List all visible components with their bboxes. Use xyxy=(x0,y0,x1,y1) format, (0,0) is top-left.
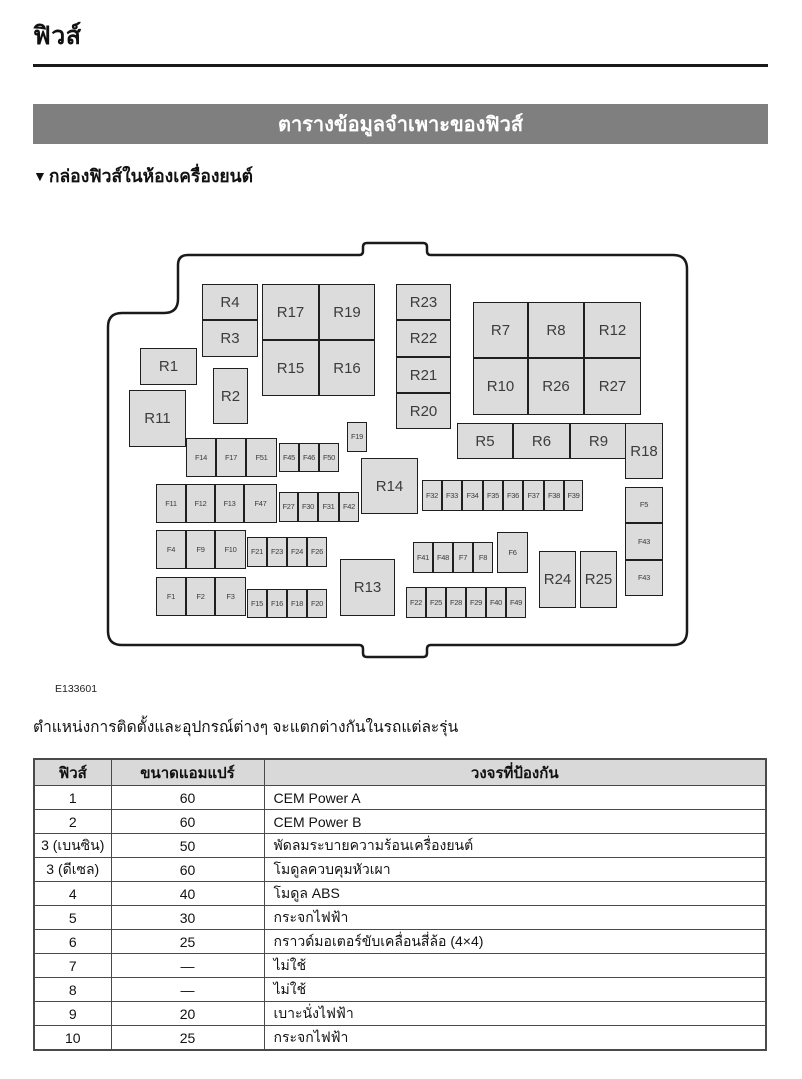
table-row: 160CEM Power A xyxy=(34,786,766,810)
fuse-F6: F6 xyxy=(497,532,528,573)
table-cell: 9 xyxy=(34,1002,111,1026)
fuse-F20: F20 xyxy=(307,589,327,618)
table-cell: 60 xyxy=(111,810,264,834)
table-cell: — xyxy=(111,954,264,978)
relay-R4: R4 xyxy=(202,284,258,320)
relay-R17: R17 xyxy=(262,284,319,340)
relay-R26: R26 xyxy=(528,358,584,415)
table-row: 920เบาะนั่งไฟฟ้า xyxy=(34,1002,766,1026)
table-cell: 3 (เบนซิน) xyxy=(34,834,111,858)
fuse-F19: F19 xyxy=(347,422,367,452)
relay-R14: R14 xyxy=(361,458,418,514)
fuse-F41: F41 xyxy=(413,542,433,573)
fuse-F32: F32 xyxy=(422,480,442,511)
table-cell: เบาะนั่งไฟฟ้า xyxy=(264,1002,766,1026)
fuse-F3: F3 xyxy=(215,577,246,616)
table-cell: CEM Power B xyxy=(264,810,766,834)
table-row: 625กราวด์มอเตอร์ขับเคลื่อนสี่ล้อ (4×4) xyxy=(34,930,766,954)
fuse-F46: F46 xyxy=(299,443,319,472)
triangle-marker-icon: ▼ xyxy=(33,168,47,184)
fuse-F13: F13 xyxy=(215,484,244,523)
table-header-cell: วงจรที่ป้องกัน xyxy=(264,759,766,786)
table-cell: — xyxy=(111,978,264,1002)
relay-R8: R8 xyxy=(528,302,584,358)
relay-R2: R2 xyxy=(213,368,248,424)
relay-R20: R20 xyxy=(396,393,451,429)
subsection-label: กล่องฟิวส์ในห้องเครื่องยนต์ xyxy=(49,162,253,190)
relay-R23: R23 xyxy=(396,284,451,320)
fuse-F45: F45 xyxy=(279,443,299,472)
section-banner: ตารางข้อมูลจำเพาะของฟิวส์ xyxy=(33,104,768,144)
fuse-F37: F37 xyxy=(523,480,544,511)
table-cell: 60 xyxy=(111,858,264,882)
table-cell: 60 xyxy=(111,786,264,810)
fuse-F47: F47 xyxy=(244,484,277,523)
fuse-F42: F42 xyxy=(339,492,359,522)
table-cell: 10 xyxy=(34,1026,111,1051)
manual-page: ฟิวส์ ตารางข้อมูลจำเพาะของฟิวส์ ▼ กล่องฟ… xyxy=(0,0,802,1079)
table-cell: 8 xyxy=(34,978,111,1002)
fuse-F31: F31 xyxy=(318,492,339,522)
relay-R12: R12 xyxy=(584,302,641,358)
fuse-F40: F40 xyxy=(486,587,506,618)
fuse-F51: F51 xyxy=(246,438,277,477)
table-row: 3 (ดีเซล)60โมดูลควบคุมหัวเผา xyxy=(34,858,766,882)
fuse-F25: F25 xyxy=(426,587,446,618)
fuse-F33: F33 xyxy=(442,480,462,511)
table-cell: ไม่ใช้ xyxy=(264,954,766,978)
fuse-F12: F12 xyxy=(186,484,215,523)
fuse-F11: F11 xyxy=(156,484,186,523)
relay-R18: R18 xyxy=(625,423,663,479)
relay-R10: R10 xyxy=(473,358,528,415)
title-divider xyxy=(33,64,768,67)
fuse-F24: F24 xyxy=(287,537,307,567)
fuse-F22: F22 xyxy=(406,587,426,618)
relay-R22: R22 xyxy=(396,320,451,357)
fuse-box-diagram: R4R3R17R19R15R16R1R2R11R23R22R21R20R7R8R… xyxy=(103,240,693,665)
table-header-row: ฟิวส์ขนาดแอมแปร์วงจรที่ป้องกัน xyxy=(34,759,766,786)
fuse-F28: F28 xyxy=(446,587,466,618)
table-cell: กระจกไฟฟ้า xyxy=(264,1026,766,1051)
table-cell: 1 xyxy=(34,786,111,810)
figure-caption: E133601 xyxy=(55,683,97,695)
fuse-F43: F43 xyxy=(625,560,663,596)
relay-R3: R3 xyxy=(202,320,258,357)
fuse-F14: F14 xyxy=(186,438,216,477)
table-cell: 5 xyxy=(34,906,111,930)
fuse-F35: F35 xyxy=(483,480,503,511)
relay-R25: R25 xyxy=(580,551,617,608)
page-title: ฟิวส์ xyxy=(33,16,82,56)
relay-R19: R19 xyxy=(319,284,375,340)
fuse-F5: F5 xyxy=(625,487,663,523)
table-body: 160CEM Power A260CEM Power B3 (เบนซิน)50… xyxy=(34,786,766,1051)
fuse-F39: F39 xyxy=(564,480,583,511)
fuse-F27: F27 xyxy=(279,492,298,522)
relay-R1: R1 xyxy=(140,348,197,385)
table-cell: 3 (ดีเซล) xyxy=(34,858,111,882)
table-cell: ไม่ใช้ xyxy=(264,978,766,1002)
fuse-F23: F23 xyxy=(267,537,287,567)
relay-R13: R13 xyxy=(340,559,395,616)
fuse-F17: F17 xyxy=(216,438,246,477)
relay-R24: R24 xyxy=(539,551,576,608)
table-row: 260CEM Power B xyxy=(34,810,766,834)
fuse-F7: F7 xyxy=(453,542,473,573)
table-cell: พัดลมระบายความร้อนเครื่องยนต์ xyxy=(264,834,766,858)
relay-R9: R9 xyxy=(570,423,627,459)
fuse-F49: F49 xyxy=(506,587,526,618)
table-cell: กราวด์มอเตอร์ขับเคลื่อนสี่ล้อ (4×4) xyxy=(264,930,766,954)
fuse-F10: F10 xyxy=(215,530,246,569)
table-cell: 40 xyxy=(111,882,264,906)
fuse-F36: F36 xyxy=(503,480,523,511)
fuse-F15: F15 xyxy=(247,589,267,618)
fuse-F48: F48 xyxy=(433,542,453,573)
fuse-F18: F18 xyxy=(287,589,307,618)
relay-R11: R11 xyxy=(129,390,186,447)
table-cell: โมดูลควบคุมหัวเผา xyxy=(264,858,766,882)
fuse-F43: F43 xyxy=(625,523,663,560)
table-header-cell: ฟิวส์ xyxy=(34,759,111,786)
table-row: 530กระจกไฟฟ้า xyxy=(34,906,766,930)
fuse-F34: F34 xyxy=(462,480,483,511)
fuse-F8: F8 xyxy=(473,542,493,573)
subsection-heading: ▼ กล่องฟิวส์ในห้องเครื่องยนต์ xyxy=(33,162,253,190)
table-cell: โมดูล ABS xyxy=(264,882,766,906)
fuse-table: ฟิวส์ขนาดแอมแปร์วงจรที่ป้องกัน 160CEM Po… xyxy=(33,758,767,1051)
table-cell: 6 xyxy=(34,930,111,954)
relay-R16: R16 xyxy=(319,340,375,396)
relay-R27: R27 xyxy=(584,358,641,415)
fuse-F4: F4 xyxy=(156,530,186,569)
table-header-cell: ขนาดแอมแปร์ xyxy=(111,759,264,786)
fuse-F29: F29 xyxy=(466,587,486,618)
table-row: 3 (เบนซิน)50พัดลมระบายความร้อนเครื่องยนต… xyxy=(34,834,766,858)
table-cell: 4 xyxy=(34,882,111,906)
fuse-F2: F2 xyxy=(186,577,215,616)
table-row: 7—ไม่ใช้ xyxy=(34,954,766,978)
relay-R5: R5 xyxy=(457,423,513,459)
table-cell: กระจกไฟฟ้า xyxy=(264,906,766,930)
table-cell: 30 xyxy=(111,906,264,930)
table-cell: 20 xyxy=(111,1002,264,1026)
table-row: 8—ไม่ใช้ xyxy=(34,978,766,1002)
table-cell: 7 xyxy=(34,954,111,978)
relay-R7: R7 xyxy=(473,302,528,358)
fuse-F30: F30 xyxy=(298,492,318,522)
table-cell: 25 xyxy=(111,930,264,954)
table-row: 440โมดูล ABS xyxy=(34,882,766,906)
table-cell: CEM Power A xyxy=(264,786,766,810)
fuse-F9: F9 xyxy=(186,530,215,569)
relay-R21: R21 xyxy=(396,357,451,393)
table-row: 1025กระจกไฟฟ้า xyxy=(34,1026,766,1051)
relay-R15: R15 xyxy=(262,340,319,396)
fuse-F38: F38 xyxy=(544,480,564,511)
fuse-F16: F16 xyxy=(267,589,287,618)
relay-R6: R6 xyxy=(513,423,570,459)
note-text: ตำแหน่งการติดตั้งและอุปกรณ์ต่างๆ จะแตกต่… xyxy=(33,714,458,739)
fuse-F26: F26 xyxy=(307,537,327,567)
table-cell: 50 xyxy=(111,834,264,858)
table-cell: 25 xyxy=(111,1026,264,1051)
fuse-F50: F50 xyxy=(319,443,339,472)
fuse-F1: F1 xyxy=(156,577,186,616)
fuse-F21: F21 xyxy=(247,537,267,567)
table-cell: 2 xyxy=(34,810,111,834)
